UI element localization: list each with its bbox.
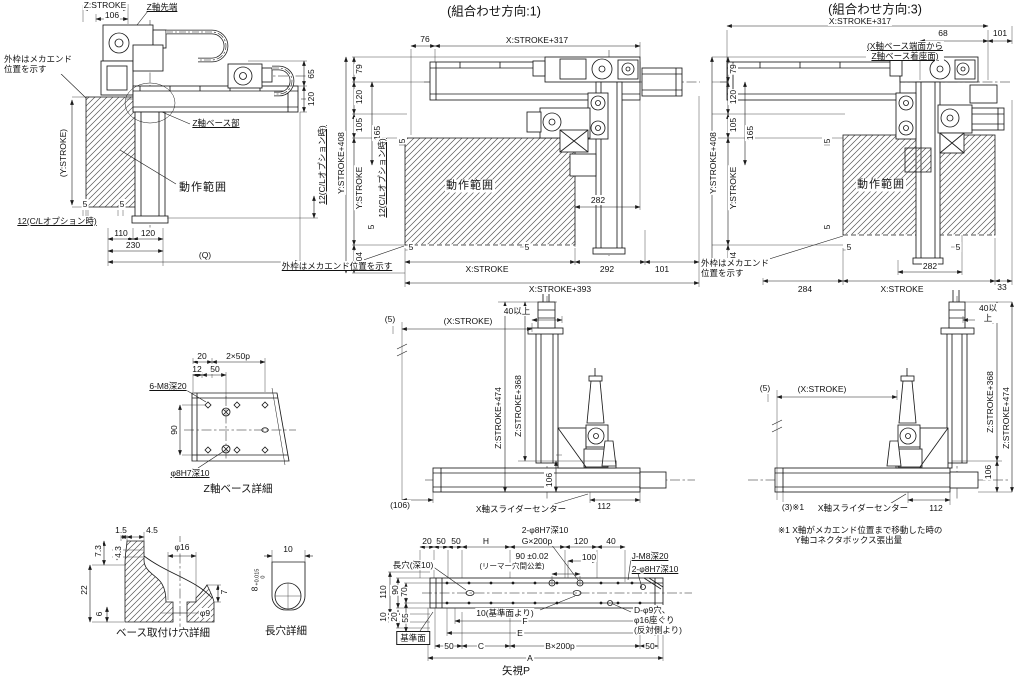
dim-292: 292 [599,264,615,274]
label-2-8h7-right: 2-φ8H7深10 [631,564,680,574]
note-d-9-hole: D-φ9穴、 φ16座ぐり (反対側より) [633,605,683,635]
label-j-m8: J-M8深20 [631,551,670,561]
dim-x393: X:STROKE+393 [528,284,592,294]
view-elev3 [748,290,1012,505]
dim-5b1-dir1: 5 [408,242,415,252]
label-8h7-zbase: φ8H7深10 [169,468,210,478]
note-zbase-seat: (X軸ベース端面から Z軸ベース着座面) [866,41,944,61]
dim-5b2-dir1: 5 [524,242,531,252]
dim-z368-elev1: Z:STROKE+368 [513,374,523,438]
dim-e: E [516,628,524,638]
view-side [57,4,318,266]
view-zbase-detail [180,358,296,468]
dim-x317-dir1: X:STROKE+317 [505,35,569,45]
dim-50b-vp: 50 [450,536,461,546]
drawing-linework [0,0,1014,684]
note-connector-box: ※1 X軸がメカエンド位置まで移動した時の Y軸コネクタボックス張出量 [777,525,943,545]
dim-70-vp: 70 [399,586,409,597]
dim-40-vp: 40 [605,536,616,546]
dim-120-side: 120 [140,228,156,238]
label-slider-center-elev3: X軸スライダーセンター [817,503,909,513]
dim-20b-vp: 20 [389,611,399,622]
view-dir3 [712,26,1012,285]
dim-90-tol: 90 ±0.02 [514,551,549,561]
dim-g200p: G×200p [521,536,554,546]
dim-5a-side: 5 [82,199,89,209]
note-reamer-tolerance: (リーマー穴間公差) [479,563,546,572]
note-mech-end-dir1: 外枠はメカエンド位置を示す [281,261,394,271]
dim-z474-elev1: Z:STROKE+474 [493,386,503,450]
dim-120-dir3: 120 [728,89,738,105]
dim-20-vp: 20 [421,536,432,546]
dim-100-vp: 100 [581,552,597,562]
dim-106-elev1: 106 [544,472,554,488]
dim-a: A [526,653,534,663]
dim-68: 68 [937,28,948,38]
dim-5-left-dir1: 5 [366,224,376,231]
dim-40min-elev1: 40以上 [503,306,531,316]
dim-5b2-dir3: 5 [955,242,962,252]
dim-120-dir1: 120 [354,89,364,105]
dim-cl-option-side-right: 12(C/Lオプション時) [317,124,327,205]
dim-7-3: 7.3 [93,544,103,558]
dim-33: 33 [996,282,1007,292]
dim-dia16: φ16 [174,542,191,552]
dim-282-dir3: 282 [922,261,938,271]
dim-105-dir1: 105 [354,117,364,133]
dim-50c-vp: 50 [443,641,454,651]
title-dir1: (組合わせ方向:1) [446,5,542,20]
dim-112-elev3: 112 [928,503,944,513]
dim-101-dir3: 101 [992,28,1008,38]
dim-h-vp: H [482,536,490,546]
dim-79-dir3: 79 [728,63,738,74]
dim-50-zbase: 50 [209,364,220,374]
dim-5-top-dir3: 5 [822,138,832,145]
dim-90-zbase: 90 [169,424,179,435]
dim-q: (Q) [198,250,212,260]
dim-65: 65 [306,68,316,79]
dim-xstroke-elev1: (X:STROKE) [443,316,494,326]
caption-view-p: 矢視P [501,665,531,677]
dim-55-vp: 55 [400,612,410,623]
dim-22: 22 [79,584,89,595]
dim-cl-option-side: 12(C/Lオプション時) [16,216,97,226]
caption-slot-detail: 長穴詳細 [264,625,308,637]
dim-z474-elev3: Z:STROKE+474 [1001,386,1011,450]
dim-f: F [521,616,528,626]
label-datum-plane: 基準面 [396,631,430,645]
dim-b200p: B×200p [544,641,576,651]
dim-4-3: 4.3 [113,545,123,559]
dim-20-zbase: 20 [196,351,207,361]
dim-12-zbase: 12 [191,364,202,374]
dim-5b-side: 5 [119,199,126,209]
technical-drawing-page: Z:STROKE 106 Z軸先端 外枠はメカエンド 位置を示す (Y:STRO… [0,0,1014,684]
dim-105-dir3: 105 [728,117,738,133]
dim-76: 76 [419,34,430,44]
dim-79-dir1: 79 [354,63,364,74]
dim-165-dir3: 165 [745,125,755,141]
note-mech-end-side: 外枠はメカエンド 位置を示す [3,54,73,74]
dim-y408-dir1: Y:STROKE+408 [336,131,346,195]
dim-230: 230 [125,240,141,250]
dim-xstroke-elev3: (X:STROKE) [797,384,848,394]
dim-xstroke-dir1: X:STROKE [465,264,510,274]
dim-ystroke-dir3: Y:STROKE [728,166,738,211]
dim-1-5: 1.5 [114,525,128,535]
dim-3-elev3: (3)※1 [781,502,805,512]
note-mech-end-dir3: 外枠はメカエンド 位置を示す [700,258,770,278]
dim-50d-vp: 50 [644,641,655,651]
dim-5p-elev3: (5) [759,383,771,393]
label-motion-range-dir1: 動作範囲 [445,180,495,193]
dim-5-left-dir3: 5 [822,224,832,231]
dim-y408-dir3: Y:STROKE+408 [708,131,718,195]
dim-106: 106 [104,10,120,20]
dim-8-tolerance: 8+0.0150 [250,568,267,593]
dim-ystroke-dir1: Y:STROKE [354,166,364,211]
dim-y-stroke-side: (Y:STROKE) [58,128,68,178]
dim-c: C [477,641,485,651]
dim-120-vp: 120 [573,536,589,546]
dim-110: 110 [113,228,129,238]
dim-7: 7 [219,589,229,596]
dim-10-slot: 10 [282,544,293,554]
dim-110-vp: 110 [378,584,388,600]
dim-5-top-dir1: 5 [397,138,407,145]
label-slot-depth10: 長穴(深10) [392,560,435,570]
dim-4-5: 4.5 [145,525,159,535]
dim-z368-elev3: Z:STROKE+368 [985,370,995,434]
dim-dia9: φ9 [199,608,211,618]
dim-282-dir1: 282 [590,195,606,205]
dim-5p-elev1: (5) [384,314,396,324]
dim-50a-vp: 50 [435,536,446,546]
dim-z-stroke: Z:STROKE [83,0,128,10]
label-motion-range-dir3: 動作範囲 [856,179,906,192]
dim-120-right: 120 [306,91,316,107]
dim-xstroke-dir3: X:STROKE [880,284,925,294]
dim-5b1-dir3: 5 [846,242,853,252]
dim-x317-dir3: X:STROKE+317 [828,16,892,26]
dim-112-elev1: 112 [596,501,612,511]
dim-6: 6 [94,611,104,618]
dim-cl-option-dir1: 12(C/Lオプション時) [377,137,387,218]
label-2-8h7-top: 2-φ8H7深10 [521,525,570,535]
dim-2x50p: 2×50p [225,351,251,361]
label-6-m8: 6-M8深20 [148,381,187,391]
label-z-base: Z軸ベース部 [191,118,240,128]
dim-106-elev3: 106 [983,464,993,480]
label-motion-range-side: 動作範囲 [178,182,228,195]
caption-bmount-detail: ベース取付け穴詳細 [115,627,211,639]
dim-40min-elev3: 40以上 [975,303,1001,323]
caption-zbase-detail: Z軸ベース詳細 [203,483,274,495]
label-slider-center-elev1: X軸スライダーセンター [475,504,567,514]
dim-106p-elev1: (106) [389,500,411,510]
label-z-tip: Z軸先端 [146,2,179,12]
dim-10-vp: 10 [378,611,388,622]
dim-101-dir1: 101 [654,264,670,274]
dim-284: 284 [797,284,813,294]
view-slot-detail [264,550,313,610]
